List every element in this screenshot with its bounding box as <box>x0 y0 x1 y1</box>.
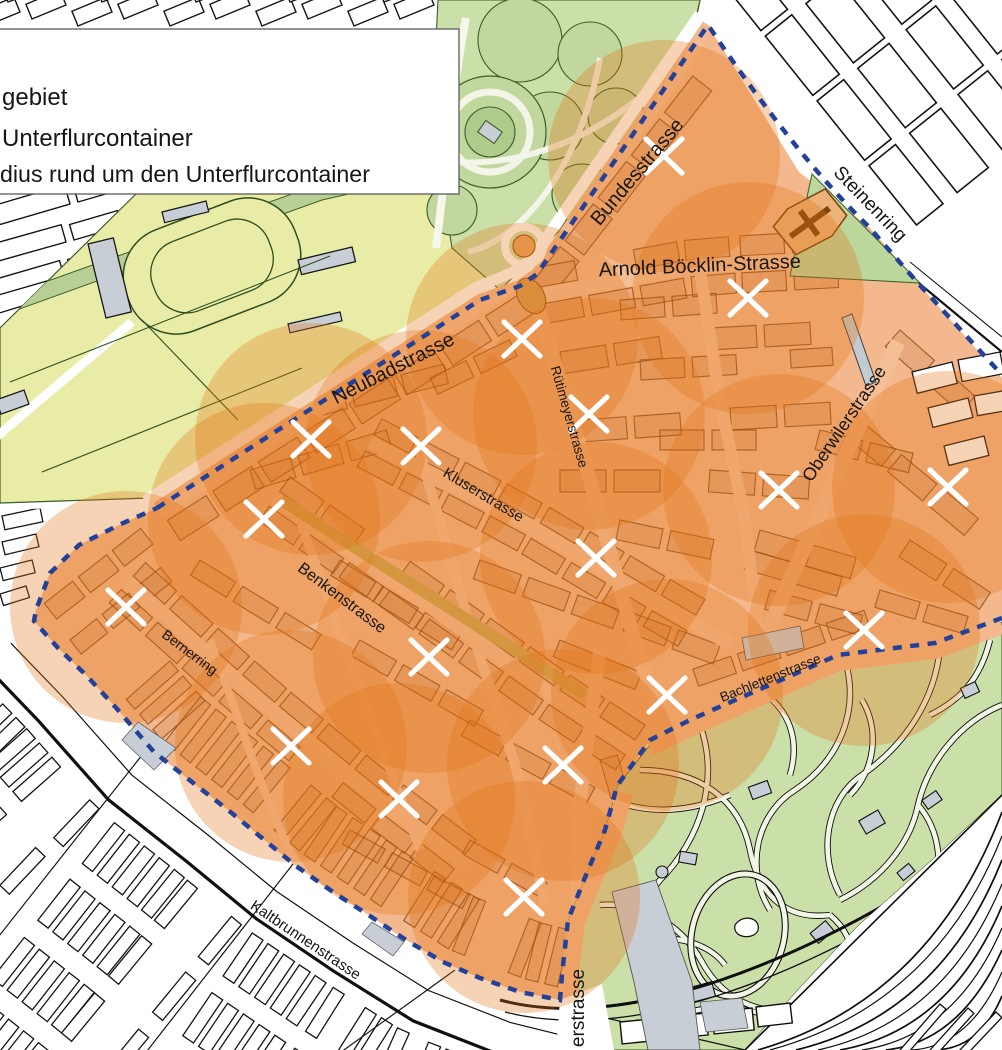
svg-text:Unterflurcontainer: Unterflurcontainer <box>2 125 193 152</box>
svg-text:erstrasse: erstrasse <box>568 969 589 1047</box>
svg-text:dius rund um den Unterflurcont: dius rund um den Unterflurcontainer <box>0 161 370 187</box>
svg-text:gebiet: gebiet <box>2 84 68 111</box>
